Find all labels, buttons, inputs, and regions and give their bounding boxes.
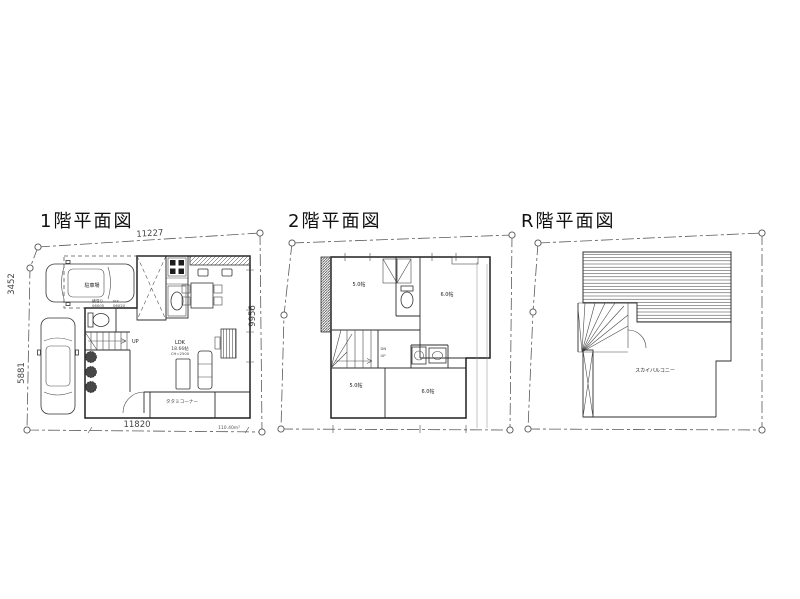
- balcony-rail-2f: [321, 257, 331, 332]
- stove-icon: [168, 258, 186, 276]
- room-label-ne: 6.0帖: [441, 291, 454, 298]
- bar-counter: [190, 256, 250, 276]
- room-label-nw: 5.0帖: [353, 281, 366, 288]
- stairs-up-label-2f: UP: [381, 353, 387, 358]
- dim-top-1f: 11227: [136, 228, 164, 240]
- island-table: [176, 359, 190, 389]
- plan-floor2: 2階平面図: [278, 211, 515, 433]
- ldk-ceiling-label: CH=2500: [171, 351, 190, 356]
- dim-left-upper-1f: 3452: [7, 273, 17, 295]
- toilet-2f: [401, 286, 413, 308]
- staircase-2f: [331, 330, 372, 368]
- car-front-view: [38, 318, 79, 414]
- room-label-sw: 5.0帖: [350, 382, 363, 389]
- washing-machine-icon: [412, 347, 426, 364]
- roof-hatch: [583, 252, 731, 322]
- sink-icon: [168, 286, 186, 316]
- plants: [86, 352, 97, 393]
- stairs-dn-label-2f: DN: [381, 346, 387, 351]
- staircase-1f: [85, 332, 127, 350]
- washroom-2f: [412, 347, 446, 364]
- window2-number: 06020: [113, 303, 126, 308]
- planR-title: R階平面図: [521, 211, 616, 232]
- sky-balcony-label: スカイバルコニー: [635, 368, 675, 374]
- plan-roof: R階平面図 スカイバルコニー: [521, 211, 765, 433]
- kitchen-counter: [166, 256, 188, 318]
- ldk-label: LDK: [175, 340, 186, 346]
- toilet-icon: [88, 313, 109, 327]
- plan-floor1: 1階平面図 11227 3452 5881 11820 9956 110.40m…: [7, 211, 265, 435]
- room-label-se: 6.0帖: [422, 388, 435, 395]
- tv-board: [215, 329, 236, 358]
- ldk-label-group: LDK 18.66帖 CH=2500: [171, 340, 190, 356]
- staircase-rf: [578, 303, 646, 352]
- vanity-sink-icon: [429, 348, 446, 363]
- wc-room-1f: [85, 308, 116, 332]
- plan1-title: 1階平面図: [40, 211, 133, 232]
- window1-number: 06005: [92, 303, 105, 308]
- window-specs-1f: 横滑り 06005 FIX 06020: [92, 299, 126, 308]
- floor-plan-sheet: 1階平面図 11227 3452 5881 11820 9956 110.40m…: [0, 0, 800, 599]
- stairs-up-label-1f: UP: [132, 339, 139, 345]
- plan2-title: 2階平面図: [288, 211, 381, 232]
- site-area-1f: 110.40m²: [218, 425, 240, 431]
- dim-bottom-1f: 11820: [123, 420, 150, 430]
- dim-left-lower-1f: 5881: [17, 362, 27, 384]
- closet-2f: [383, 259, 411, 283]
- sky-balcony: スカイバルコニー: [583, 322, 731, 417]
- entrance-door-arc: [123, 392, 144, 413]
- floor-plan-drawing: 1階平面図 11227 3452 5881 11820 9956 110.40m…: [0, 0, 800, 599]
- site-boundary-2f: [278, 232, 515, 433]
- tatami-corner-label: タタミコーナー: [166, 398, 199, 405]
- sofa: [198, 351, 212, 389]
- void-x-area: [137, 256, 166, 320]
- parking-label: 駐車場: [84, 282, 99, 289]
